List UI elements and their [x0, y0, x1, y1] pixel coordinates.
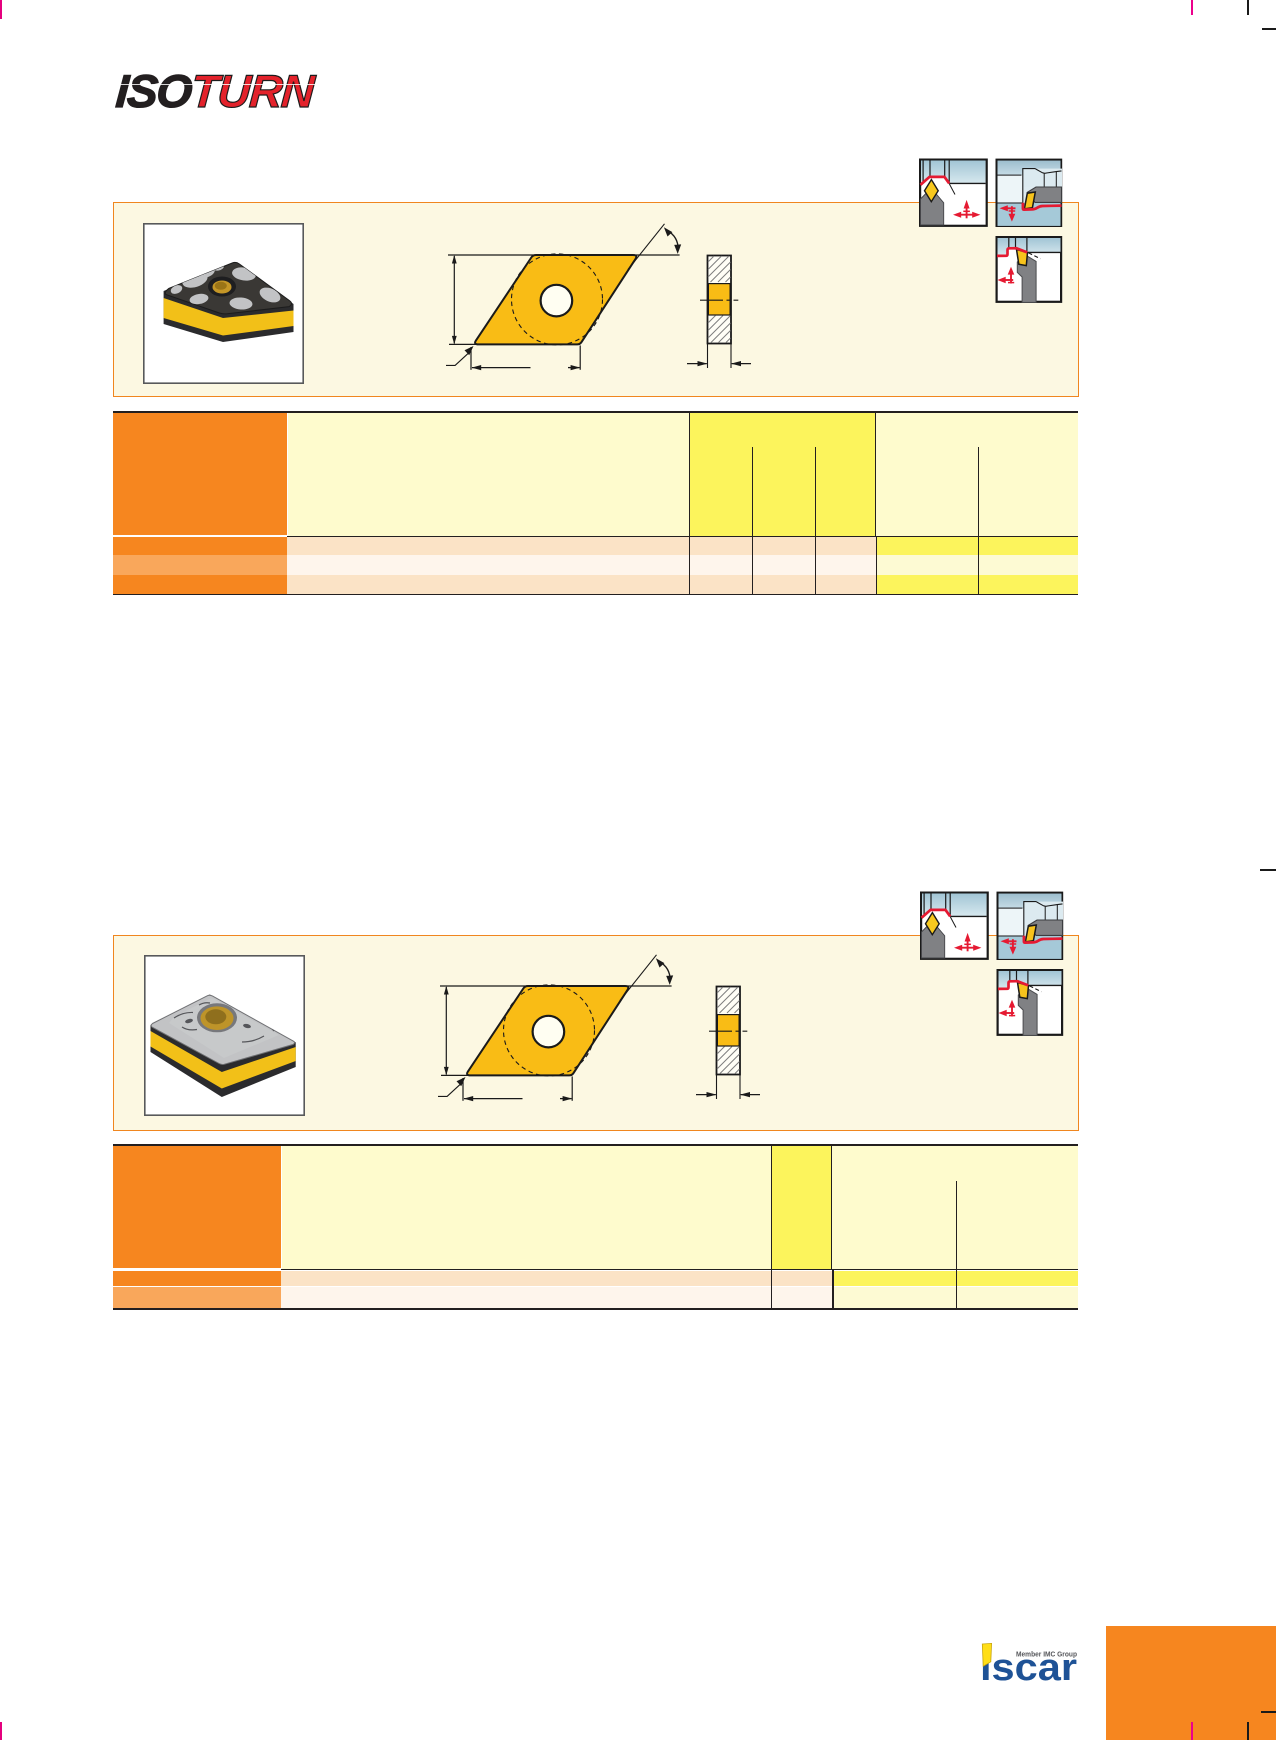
svg-text:Member IMC Group: Member IMC Group — [1016, 1650, 1078, 1659]
